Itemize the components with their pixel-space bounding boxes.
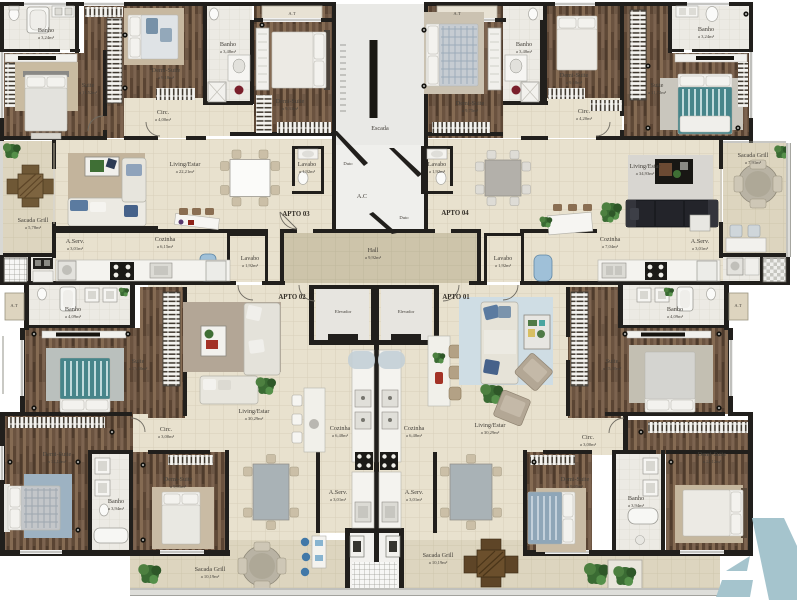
svg-text:Living/Estar: Living/Estar [630,163,661,170]
svg-text:Banho: Banho [667,306,683,313]
svg-text:Banho: Banho [38,27,54,34]
svg-text:Banho: Banho [698,26,714,33]
svg-text:Cozinha: Cozinha [330,425,351,432]
svg-text:Demi-Suite: Demi-Suite [456,100,485,107]
svg-text:Elevador: Elevador [398,309,415,314]
svg-text:Sacada Grill: Sacada Grill [195,566,226,573]
svg-text:Cozinha: Cozinha [600,236,621,243]
svg-text:Banho: Banho [65,306,81,313]
svg-text:Duto: Duto [343,161,353,166]
svg-text:Demi-Suite: Demi-Suite [152,67,181,74]
svg-text:Circ.: Circ. [582,434,595,441]
svg-text:Banho: Banho [516,41,532,48]
svg-text:Suite: Suite [651,82,664,89]
svg-text:Suite: Suite [132,358,145,365]
svg-text:Demi-Suite: Demi-Suite [560,72,589,79]
svg-text:Suite: Suite [606,358,619,365]
svg-text:Elevador: Elevador [335,309,352,314]
svg-text:Lavabo: Lavabo [428,161,447,168]
svg-text:Sacada Grill: Sacada Grill [18,217,49,224]
svg-text:Banho: Banho [220,41,236,48]
svg-text:Living/Estar: Living/Estar [239,408,270,415]
svg-text:Banho: Banho [108,498,124,505]
svg-text:Demi-Suite: Demi-Suite [164,476,193,483]
svg-text:Demi-Suite: Demi-Suite [43,451,72,458]
svg-text:Banho: Banho [628,495,644,502]
svg-text:A.Serv.: A.Serv. [329,489,348,496]
svg-text:Circ.: Circ. [578,108,591,115]
svg-text:Lavabo: Lavabo [298,161,317,168]
svg-text:Duto: Duto [399,215,409,220]
svg-text:APTO 02: APTO 02 [278,294,306,301]
svg-text:Sacada Grill: Sacada Grill [423,552,454,559]
svg-text:Lavabo: Lavabo [241,255,260,262]
svg-text:Demi-Suite: Demi-Suite [276,98,305,105]
svg-text:A.Serv.: A.Serv. [66,238,85,245]
svg-text:A.T: A.T [288,11,295,16]
svg-text:A.C: A.C [357,193,367,200]
svg-text:Suite: Suite [82,82,95,89]
svg-text:Circ.: Circ. [160,426,173,433]
svg-text:APTO 03: APTO 03 [282,211,310,218]
svg-text:Cozinha: Cozinha [404,425,425,432]
svg-text:A.T: A.T [10,303,17,308]
svg-text:Living/Estar: Living/Estar [475,422,506,429]
svg-text:A.T: A.T [734,303,741,308]
svg-text:Hall: Hall [368,247,379,254]
svg-text:Demi-Suite: Demi-Suite [561,476,590,483]
svg-text:Cozinha: Cozinha [155,236,176,243]
svg-text:A.Serv.: A.Serv. [691,238,710,245]
svg-text:APTO 01: APTO 01 [442,294,470,301]
svg-text:Lavabo: Lavabo [494,255,513,262]
svg-text:A.Serv.: A.Serv. [405,489,424,496]
svg-text:APTO 04: APTO 04 [441,210,469,217]
svg-text:Sacada Grill: Sacada Grill [738,152,769,159]
svg-text:Escada: Escada [371,125,389,132]
svg-text:A.T: A.T [453,11,460,16]
svg-text:Living/Estar: Living/Estar [170,161,201,168]
svg-text:Circ.: Circ. [157,109,170,116]
svg-text:Demi-Suite: Demi-Suite [698,451,727,458]
